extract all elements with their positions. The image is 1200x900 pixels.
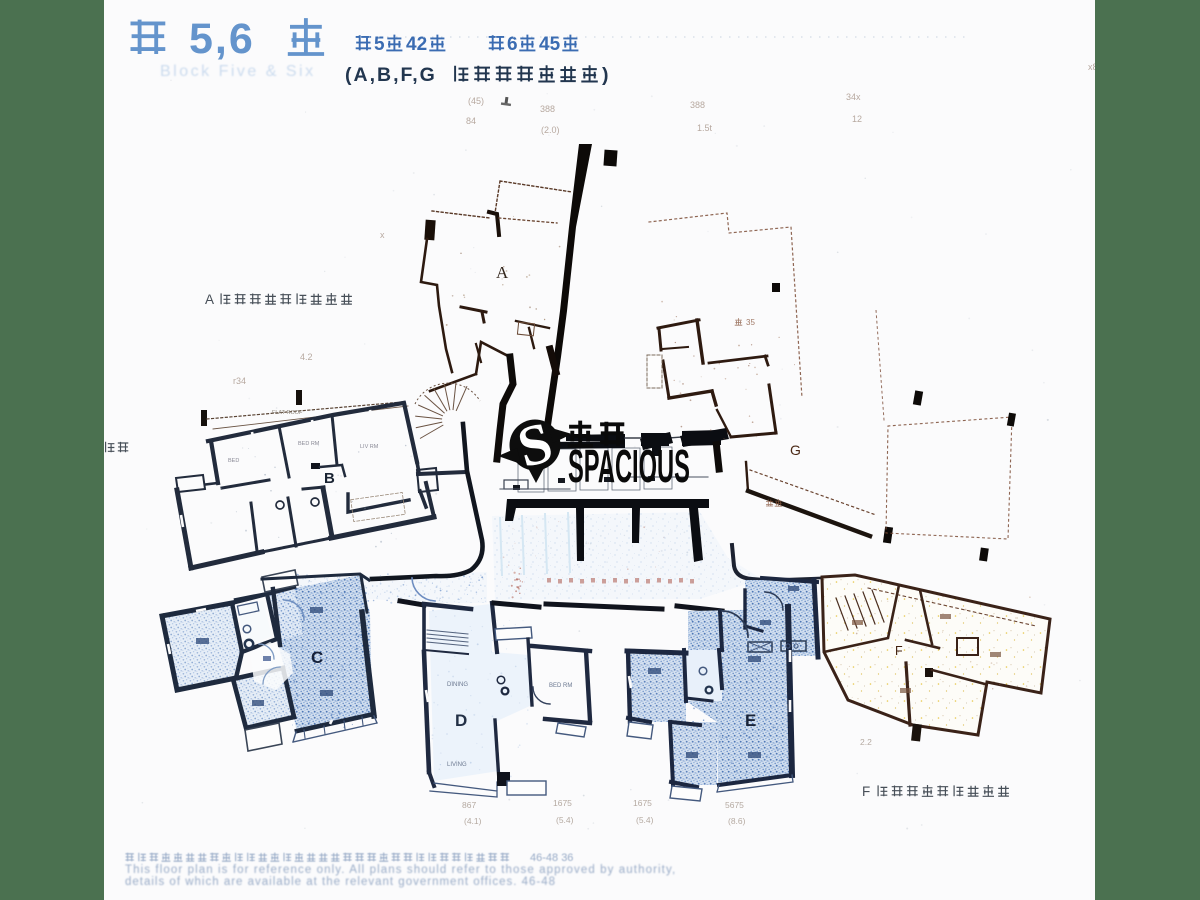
- svg-text:F: F: [895, 644, 903, 658]
- svg-text:(5.4): (5.4): [636, 815, 654, 825]
- svg-text:C: C: [311, 648, 323, 667]
- svg-text:r34: r34: [233, 376, 246, 386]
- svg-text:35: 35: [746, 318, 755, 327]
- svg-text:BED: BED: [228, 458, 239, 464]
- svg-text:12: 12: [852, 114, 862, 124]
- svg-text:46-48 36: 46-48 36: [530, 852, 573, 864]
- svg-text:A: A: [205, 292, 214, 307]
- svg-text:4.2: 4.2: [300, 352, 313, 362]
- svg-text:1675: 1675: [633, 798, 652, 808]
- svg-text:DINING: DINING: [447, 682, 468, 688]
- svg-text:5675: 5675: [725, 800, 744, 810]
- svg-text:BED RM: BED RM: [549, 683, 572, 689]
- svg-text:(8.6): (8.6): [728, 816, 746, 826]
- svg-text:FLAT ROOF: FLAT ROOF: [272, 410, 303, 416]
- svg-text:1.5t: 1.5t: [697, 123, 713, 133]
- svg-text:This floor plan is for referen: This floor plan is for reference only. A…: [125, 864, 676, 876]
- svg-text:(45): (45): [468, 96, 484, 106]
- svg-text:details of which are available: details of which are available at the re…: [125, 876, 556, 888]
- svg-text:E: E: [745, 711, 756, 730]
- svg-text:D: D: [455, 711, 467, 730]
- svg-text:SPACIOUS: SPACIOUS: [568, 441, 690, 493]
- svg-text:Block Five & Six: Block Five & Six: [160, 63, 316, 80]
- svg-text:B: B: [324, 470, 335, 487]
- svg-text:(A,B,F,G: (A,B,F,G: [345, 64, 437, 86]
- svg-text:6: 6: [507, 34, 518, 55]
- svg-text:(5.4): (5.4): [556, 815, 574, 825]
- svg-text:1675: 1675: [553, 798, 572, 808]
- svg-text:x: x: [380, 230, 385, 240]
- svg-text:): ): [602, 64, 609, 86]
- svg-text:34x: 34x: [846, 92, 861, 102]
- svg-text:84: 84: [466, 116, 476, 126]
- svg-text:F: F: [862, 784, 870, 799]
- svg-text:LIVING: LIVING: [447, 762, 467, 768]
- svg-text:(4.1): (4.1): [464, 816, 482, 826]
- svg-text:2.2: 2.2: [860, 737, 872, 747]
- svg-text:5,6: 5,6: [189, 15, 255, 63]
- svg-text:388: 388: [540, 104, 555, 114]
- svg-text:BED RM: BED RM: [298, 441, 320, 447]
- svg-text:(2.0): (2.0): [541, 125, 560, 135]
- svg-text:G: G: [790, 442, 801, 458]
- svg-text:867: 867: [462, 800, 476, 810]
- svg-text:LIV RM: LIV RM: [360, 444, 379, 450]
- svg-text:388: 388: [690, 100, 705, 110]
